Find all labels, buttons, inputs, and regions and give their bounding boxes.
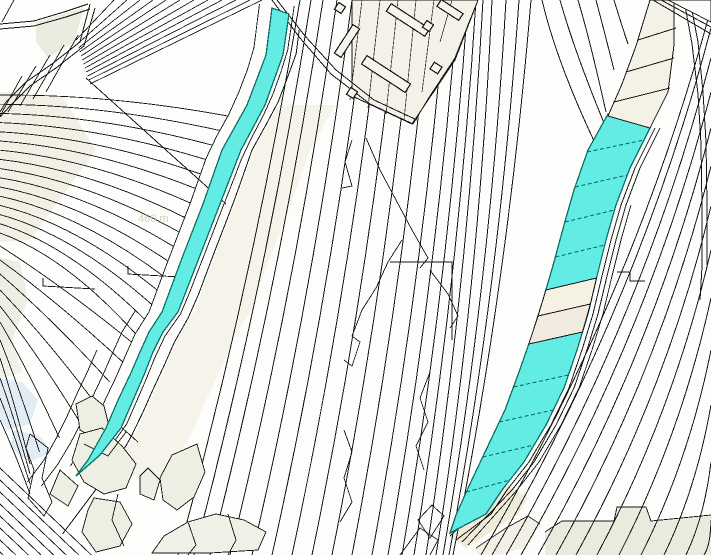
svg-text:460 m: 460 m — [138, 213, 169, 225]
